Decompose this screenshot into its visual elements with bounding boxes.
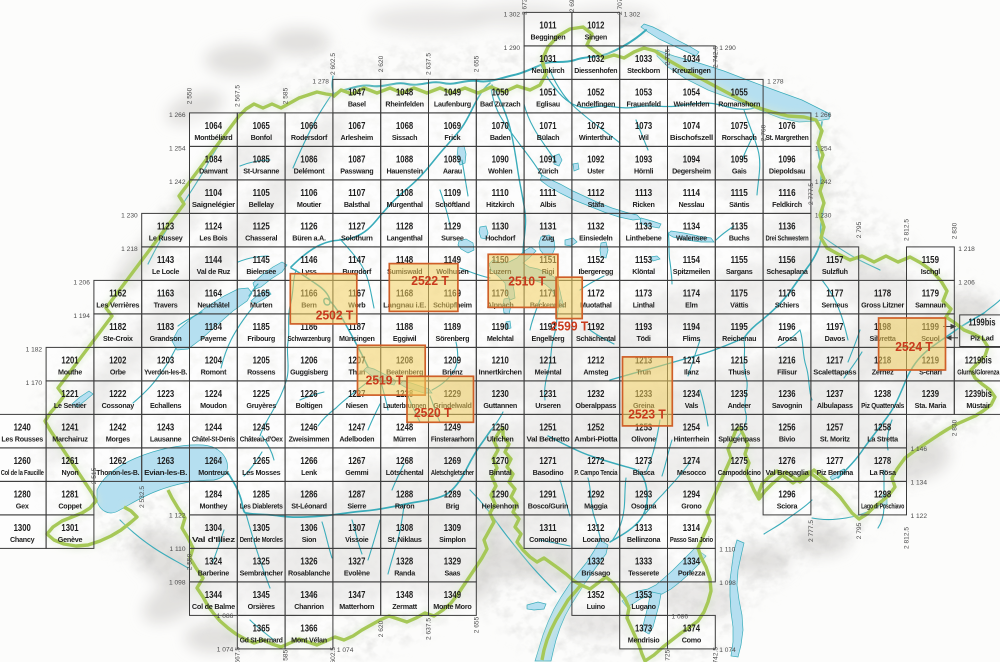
svg-text:Diessenhofen: Diessenhofen xyxy=(574,66,617,75)
svg-text:Yverdon-les-B.: Yverdon-les-B. xyxy=(144,368,187,377)
svg-text:1205: 1205 xyxy=(253,356,271,367)
svg-text:1347: 1347 xyxy=(348,590,366,601)
svg-text:1246: 1246 xyxy=(300,423,318,434)
svg-text:Luino: Luino xyxy=(587,602,606,611)
svg-text:1206: 1206 xyxy=(300,356,318,367)
svg-text:La Rösa: La Rösa xyxy=(869,468,896,477)
svg-text:Frauenfeld: Frauenfeld xyxy=(626,100,660,109)
svg-text:1215: 1215 xyxy=(731,356,749,367)
svg-text:Langenthal: Langenthal xyxy=(387,234,423,243)
svg-text:Saignelégier: Saignelégier xyxy=(192,200,235,209)
svg-text:1123: 1123 xyxy=(157,222,175,233)
svg-text:Lugano: Lugano xyxy=(631,602,656,611)
svg-text:1132: 1132 xyxy=(587,222,605,233)
svg-text:1165: 1165 xyxy=(253,289,271,300)
svg-text:2523 T: 2523 T xyxy=(628,407,666,422)
svg-text:Gross Litzner: Gross Litzner xyxy=(861,301,904,310)
svg-text:1073: 1073 xyxy=(635,121,653,132)
svg-text:1174: 1174 xyxy=(683,289,701,300)
svg-text:1089: 1089 xyxy=(444,155,462,166)
svg-text:Lago di Poschiavo: Lago di Poschiavo xyxy=(861,502,905,511)
svg-text:Beggingen: Beggingen xyxy=(531,33,566,42)
svg-text:Filisur: Filisur xyxy=(777,368,797,377)
svg-text:1 290: 1 290 xyxy=(719,45,736,52)
svg-text:Brissago: Brissago xyxy=(581,569,611,578)
svg-text:Urseren: Urseren xyxy=(535,401,560,410)
svg-text:Orbe: Orbe xyxy=(110,368,126,377)
svg-text:Mouthe: Mouthe xyxy=(58,368,82,377)
svg-text:Rorschach: Rorschach xyxy=(722,133,757,142)
svg-text:1075: 1075 xyxy=(731,121,749,132)
svg-text:1252: 1252 xyxy=(587,423,605,434)
svg-text:1 218: 1 218 xyxy=(121,246,138,253)
svg-text:1344: 1344 xyxy=(205,590,223,601)
svg-text:Grandson: Grandson xyxy=(150,334,182,343)
svg-text:Bosco/Gurin: Bosco/Gurin xyxy=(528,502,568,511)
svg-text:Sursee: Sursee xyxy=(441,234,464,243)
svg-text:1052: 1052 xyxy=(587,88,605,99)
svg-text:Helsenhorn: Helsenhorn xyxy=(482,502,519,511)
svg-text:1365: 1365 xyxy=(253,624,271,635)
svg-text:1276: 1276 xyxy=(778,456,796,467)
svg-text:P. Campo Tencia: P. Campo Tencia xyxy=(574,468,618,477)
svg-text:Ischgl: Ischgl xyxy=(921,267,941,276)
svg-text:1277: 1277 xyxy=(826,456,844,467)
svg-text:1326: 1326 xyxy=(300,557,318,568)
svg-text:1 266: 1 266 xyxy=(169,112,186,119)
svg-text:1175: 1175 xyxy=(731,289,749,300)
svg-text:Zermatt: Zermatt xyxy=(392,602,417,611)
svg-text:1164: 1164 xyxy=(205,289,223,300)
svg-text:1212: 1212 xyxy=(587,356,605,367)
svg-text:1050: 1050 xyxy=(492,88,510,99)
svg-text:Les Diablerets: Les Diablerets xyxy=(240,502,283,511)
svg-text:1333: 1333 xyxy=(635,557,653,568)
svg-text:1092: 1092 xyxy=(587,155,605,166)
svg-text:1031: 1031 xyxy=(539,54,557,65)
svg-text:1241: 1241 xyxy=(61,423,79,434)
svg-text:Hochdorf: Hochdorf xyxy=(485,234,516,243)
svg-text:1230: 1230 xyxy=(492,389,510,400)
svg-text:Brig: Brig xyxy=(446,502,459,511)
svg-text:2 515: 2 515 xyxy=(91,467,98,484)
svg-text:Binntal: Binntal xyxy=(489,468,512,477)
svg-text:2 567.5: 2 567.5 xyxy=(235,647,242,662)
svg-text:2522 T: 2522 T xyxy=(411,273,449,288)
svg-text:2 742.5: 2 742.5 xyxy=(713,46,720,68)
svg-text:Gais: Gais xyxy=(732,167,747,176)
svg-text:2 777.5: 2 777.5 xyxy=(808,183,815,205)
svg-text:Splügenpass: Splügenpass xyxy=(718,435,760,444)
svg-text:1125: 1125 xyxy=(253,222,271,233)
svg-text:Bellinzona: Bellinzona xyxy=(627,535,662,544)
svg-text:1210: 1210 xyxy=(492,356,510,367)
svg-text:Chasseral: Chasseral xyxy=(245,234,277,243)
svg-text:1053: 1053 xyxy=(635,88,653,99)
svg-text:Piz Quattervals: Piz Quattervals xyxy=(861,401,904,410)
svg-text:1199bis: 1199bis xyxy=(969,318,996,329)
svg-text:1294: 1294 xyxy=(683,490,701,501)
svg-text:1127: 1127 xyxy=(348,222,366,233)
svg-text:Wohlen: Wohlen xyxy=(488,167,512,176)
svg-text:1091: 1091 xyxy=(539,155,557,166)
svg-text:1274: 1274 xyxy=(683,456,701,467)
svg-text:1193: 1193 xyxy=(635,322,653,333)
svg-text:Muotathal: Muotathal xyxy=(580,301,612,310)
svg-text:Orsières: Orsières xyxy=(248,602,275,611)
svg-text:Como: Como xyxy=(682,636,702,645)
svg-text:1 122: 1 122 xyxy=(169,513,186,520)
svg-text:Passwang: Passwang xyxy=(340,167,373,176)
svg-text:Bellelay: Bellelay xyxy=(249,200,274,209)
svg-text:1270: 1270 xyxy=(492,456,510,467)
svg-text:1131: 1131 xyxy=(539,222,557,233)
svg-text:1288: 1288 xyxy=(396,490,414,501)
svg-text:1112: 1112 xyxy=(587,188,605,199)
svg-text:1188: 1188 xyxy=(396,322,414,333)
svg-text:1128: 1128 xyxy=(396,222,414,233)
svg-text:Meiental: Meiental xyxy=(535,368,562,377)
svg-text:1222: 1222 xyxy=(109,389,127,400)
svg-text:Piz Bernina: Piz Bernina xyxy=(817,468,855,477)
svg-text:1248: 1248 xyxy=(396,423,414,434)
svg-text:Ste-Croix: Ste-Croix xyxy=(103,334,133,343)
svg-text:Basel: Basel xyxy=(348,100,366,109)
svg-text:2 602.5: 2 602.5 xyxy=(330,647,337,662)
svg-text:Le Locle: Le Locle xyxy=(152,267,179,276)
svg-text:Ricken: Ricken xyxy=(633,200,655,209)
svg-text:Aarau: Aarau xyxy=(443,167,462,176)
svg-text:1011: 1011 xyxy=(539,21,557,32)
svg-text:Schwarzenburg: Schwarzenburg xyxy=(288,334,331,343)
svg-text:1353: 1353 xyxy=(635,590,653,601)
svg-text:1286: 1286 xyxy=(300,490,318,501)
svg-text:Balsthal: Balsthal xyxy=(344,200,370,209)
svg-text:Linthal: Linthal xyxy=(633,301,655,310)
svg-text:1265: 1265 xyxy=(253,456,271,467)
svg-text:1176: 1176 xyxy=(778,289,796,300)
svg-text:1348: 1348 xyxy=(396,590,414,601)
svg-text:Singen: Singen xyxy=(585,33,607,42)
svg-text:Schöftland: Schöftland xyxy=(435,200,470,209)
svg-text:1184: 1184 xyxy=(205,322,223,333)
svg-text:Sulzfluh: Sulzfluh xyxy=(822,267,848,276)
svg-text:1055: 1055 xyxy=(731,88,749,99)
svg-text:1088: 1088 xyxy=(396,155,414,166)
svg-text:Solothurn: Solothurn xyxy=(341,234,373,243)
svg-text:Sissach: Sissach xyxy=(392,133,417,142)
svg-text:2524 T: 2524 T xyxy=(895,339,933,354)
svg-text:Tesserete: Tesserete xyxy=(628,569,659,578)
svg-text:Klöntal: Klöntal xyxy=(632,267,655,276)
svg-text:2 637.5: 2 637.5 xyxy=(426,53,433,75)
svg-text:Scalettapass: Scalettapass xyxy=(813,368,856,377)
svg-text:Col de Balme: Col de Balme xyxy=(192,602,235,611)
svg-text:1 074: 1 074 xyxy=(719,647,736,654)
svg-text:Ibergeregg: Ibergeregg xyxy=(578,267,613,276)
svg-text:1 146: 1 146 xyxy=(911,446,928,453)
svg-text:1273: 1273 xyxy=(635,456,653,467)
svg-text:1214: 1214 xyxy=(683,356,701,367)
svg-text:1 218: 1 218 xyxy=(958,246,975,253)
svg-text:1287: 1287 xyxy=(348,490,366,501)
svg-text:1154: 1154 xyxy=(683,255,701,266)
svg-text:1086: 1086 xyxy=(300,155,318,166)
svg-text:1285: 1285 xyxy=(253,490,271,501)
svg-text:Mont Vélan: Mont Vélan xyxy=(291,636,327,645)
svg-text:Gruyères: Gruyères xyxy=(246,401,276,410)
svg-text:Wil: Wil xyxy=(639,133,649,142)
svg-text:Osogna: Osogna xyxy=(631,502,658,511)
svg-text:1280: 1280 xyxy=(14,490,32,501)
svg-text:1145: 1145 xyxy=(253,255,271,266)
svg-text:1236: 1236 xyxy=(778,389,796,400)
svg-text:2 602.5: 2 602.5 xyxy=(330,53,337,75)
svg-text:Sciora: Sciora xyxy=(777,502,799,511)
svg-text:Payerne: Payerne xyxy=(200,334,226,343)
svg-text:2 690: 2 690 xyxy=(569,0,576,12)
svg-text:1072: 1072 xyxy=(587,121,605,132)
svg-text:Niesen: Niesen xyxy=(346,401,368,410)
svg-text:1211: 1211 xyxy=(539,356,557,367)
svg-text:1147: 1147 xyxy=(348,255,366,266)
svg-text:Moudon: Moudon xyxy=(200,401,226,410)
svg-text:1 194: 1 194 xyxy=(73,313,90,320)
svg-text:Diepoldsau: Diepoldsau xyxy=(769,167,805,176)
svg-text:Basodino: Basodino xyxy=(533,468,565,477)
svg-text:1109: 1109 xyxy=(444,188,462,199)
svg-text:Schesaplana: Schesaplana xyxy=(766,267,808,276)
svg-text:1130: 1130 xyxy=(492,222,510,233)
svg-text:1182: 1182 xyxy=(109,322,127,333)
svg-text:1304: 1304 xyxy=(205,523,223,534)
svg-text:1281: 1281 xyxy=(61,490,79,501)
svg-text:1219bis: 1219bis xyxy=(965,356,992,367)
svg-text:Raron: Raron xyxy=(395,502,415,511)
svg-text:Damvant: Damvant xyxy=(199,167,228,176)
svg-text:1226: 1226 xyxy=(300,389,318,400)
svg-text:1 098: 1 098 xyxy=(719,580,736,587)
svg-text:1324: 1324 xyxy=(205,557,223,568)
svg-text:1223: 1223 xyxy=(157,389,175,400)
svg-text:1159: 1159 xyxy=(922,255,940,266)
svg-text:Guttannen: Guttannen xyxy=(483,401,517,410)
svg-text:2 620: 2 620 xyxy=(378,620,385,637)
svg-text:Col de la Faucille: Col de la Faucille xyxy=(1,468,44,477)
svg-text:1 170: 1 170 xyxy=(26,380,43,387)
svg-text:St. Margrethen: St. Margrethen xyxy=(766,133,809,142)
svg-text:Sembrancher: Sembrancher xyxy=(240,569,284,578)
svg-text:Savognin: Savognin xyxy=(772,401,802,410)
svg-text:1366: 1366 xyxy=(300,624,318,635)
svg-text:1311: 1311 xyxy=(539,523,557,534)
svg-text:Bülach: Bülach xyxy=(537,133,559,142)
svg-text:Elm: Elm xyxy=(685,301,697,310)
svg-text:1185: 1185 xyxy=(253,322,271,333)
svg-text:1238: 1238 xyxy=(874,389,892,400)
svg-text:1115: 1115 xyxy=(731,188,749,199)
svg-text:1269: 1269 xyxy=(444,456,462,467)
svg-text:1314: 1314 xyxy=(683,523,701,534)
svg-text:Laufenburg: Laufenburg xyxy=(434,100,471,109)
svg-text:Adelboden: Adelboden xyxy=(339,435,374,444)
svg-text:Münsingen: Münsingen xyxy=(339,334,375,343)
svg-text:1301: 1301 xyxy=(61,523,79,534)
svg-text:Steckborn: Steckborn xyxy=(627,66,660,75)
svg-text:Châtel-St-Denis: Châtel-St-Denis xyxy=(192,435,235,444)
svg-text:1133: 1133 xyxy=(635,222,653,233)
svg-text:Maggia: Maggia xyxy=(584,502,609,511)
svg-text:1178: 1178 xyxy=(874,289,892,300)
svg-text:2519 T: 2519 T xyxy=(366,373,404,388)
svg-text:1272: 1272 xyxy=(587,456,605,467)
svg-text:2502 T: 2502 T xyxy=(316,308,354,323)
svg-text:Büren a.A.: Büren a.A. xyxy=(292,234,326,243)
svg-text:1135: 1135 xyxy=(731,222,749,233)
svg-text:1196: 1196 xyxy=(778,322,796,333)
svg-text:2 550: 2 550 xyxy=(187,553,194,570)
svg-text:1260: 1260 xyxy=(14,456,32,467)
svg-text:1069: 1069 xyxy=(444,121,462,132)
svg-text:2 655: 2 655 xyxy=(474,616,481,633)
svg-text:Campodolcino: Campodolcino xyxy=(718,468,762,477)
svg-text:Feldkirch: Feldkirch xyxy=(772,200,802,209)
svg-text:1232: 1232 xyxy=(587,389,605,400)
svg-text:1087: 1087 xyxy=(348,155,366,166)
svg-text:Lötschental: Lötschental xyxy=(386,468,424,477)
svg-text:1352: 1352 xyxy=(587,590,605,601)
svg-text:Walensee: Walensee xyxy=(676,234,707,243)
svg-text:Barberine: Barberine xyxy=(198,569,230,578)
svg-text:Samnaun: Samnaun xyxy=(915,301,946,310)
svg-text:1251: 1251 xyxy=(539,423,557,434)
svg-text:Genève: Genève xyxy=(58,535,83,544)
svg-text:1064: 1064 xyxy=(205,121,223,132)
svg-text:1217: 1217 xyxy=(826,356,844,367)
svg-text:Val de Ruz: Val de Ruz xyxy=(197,267,231,276)
svg-text:1203: 1203 xyxy=(157,356,175,367)
svg-text:1309: 1309 xyxy=(444,523,462,534)
svg-text:Val d'Illiez: Val d'Illiez xyxy=(192,535,236,544)
svg-text:Sierre: Sierre xyxy=(347,502,366,511)
svg-text:Weinfelden: Weinfelden xyxy=(674,100,710,109)
svg-text:Hörnli: Hörnli xyxy=(634,167,654,176)
svg-text:2 777.5: 2 777.5 xyxy=(808,520,815,542)
svg-text:1107: 1107 xyxy=(348,188,366,199)
svg-text:Rosablanche: Rosablanche xyxy=(288,569,330,578)
svg-text:1173: 1173 xyxy=(635,289,653,300)
svg-text:Albis: Albis xyxy=(540,200,557,209)
svg-text:2 725: 2 725 xyxy=(665,649,672,662)
svg-text:Vals: Vals xyxy=(685,401,699,410)
svg-text:Matterhorn: Matterhorn xyxy=(339,602,374,611)
svg-text:1271: 1271 xyxy=(539,456,557,467)
svg-text:1163: 1163 xyxy=(157,289,175,300)
svg-text:Aletschgletscher: Aletschgletscher xyxy=(431,468,474,477)
svg-text:1113: 1113 xyxy=(635,188,653,199)
svg-text:Grono: Grono xyxy=(681,502,702,511)
svg-text:1177: 1177 xyxy=(826,289,844,300)
svg-text:2 585: 2 585 xyxy=(282,87,289,104)
svg-text:1134: 1134 xyxy=(683,222,701,233)
svg-text:Rodersdorf: Rodersdorf xyxy=(291,133,328,142)
svg-text:Bivio: Bivio xyxy=(779,435,796,444)
svg-text:Locarno: Locarno xyxy=(582,535,609,544)
svg-text:1373: 1373 xyxy=(635,624,653,635)
svg-text:Les Rousses: Les Rousses xyxy=(1,435,43,444)
svg-text:1179: 1179 xyxy=(922,289,940,300)
svg-text:1345: 1345 xyxy=(253,590,271,601)
svg-text:1261: 1261 xyxy=(61,456,79,467)
svg-text:2 620: 2 620 xyxy=(378,55,385,72)
svg-text:1108: 1108 xyxy=(396,188,414,199)
svg-text:1192: 1192 xyxy=(587,322,605,333)
svg-text:Porlezza: Porlezza xyxy=(678,569,706,578)
svg-text:Arosa: Arosa xyxy=(777,334,797,343)
svg-text:Guggisberg: Guggisberg xyxy=(290,368,328,377)
svg-text:1129: 1129 xyxy=(444,222,462,233)
svg-text:1225: 1225 xyxy=(253,389,271,400)
svg-text:1240: 1240 xyxy=(14,423,32,434)
svg-text:Tödi: Tödi xyxy=(637,334,651,343)
svg-text:2 742.5: 2 742.5 xyxy=(713,647,720,662)
svg-text:1 266: 1 266 xyxy=(815,112,832,119)
svg-text:Mesocco: Mesocco xyxy=(677,468,707,477)
svg-text:1328: 1328 xyxy=(396,557,414,568)
svg-text:Passo San Jorio: Passo San Jorio xyxy=(670,535,714,544)
svg-text:Simplon: Simplon xyxy=(439,535,466,544)
svg-text:Andeer: Andeer xyxy=(728,401,752,410)
svg-text:1239: 1239 xyxy=(922,389,940,400)
svg-text:1152: 1152 xyxy=(587,255,605,266)
svg-text:1136: 1136 xyxy=(778,222,796,233)
svg-text:2 672.5: 2 672.5 xyxy=(521,0,528,15)
svg-text:Coppet: Coppet xyxy=(58,502,82,511)
svg-text:1048: 1048 xyxy=(396,88,414,99)
svg-text:1300: 1300 xyxy=(14,523,32,534)
svg-text:1 182: 1 182 xyxy=(26,347,43,354)
svg-text:2 707.5: 2 707.5 xyxy=(617,0,624,15)
svg-text:Ambri-Piotta: Ambri-Piotta xyxy=(574,435,618,444)
svg-text:1071: 1071 xyxy=(539,121,557,132)
svg-text:Morges: Morges xyxy=(106,435,130,444)
svg-text:Vättis: Vättis xyxy=(730,301,748,310)
svg-text:1 110: 1 110 xyxy=(719,546,735,553)
svg-text:Evian-les-B.: Evian-les-B. xyxy=(144,468,187,477)
svg-text:1034: 1034 xyxy=(683,54,701,65)
svg-text:2 795: 2 795 xyxy=(856,522,863,539)
svg-text:1244: 1244 xyxy=(205,423,223,434)
svg-text:Val Bregaglia: Val Bregaglia xyxy=(766,468,810,477)
svg-text:1 206: 1 206 xyxy=(73,280,90,287)
svg-text:Les Verrières: Les Verrières xyxy=(96,301,139,310)
svg-text:1 074: 1 074 xyxy=(217,647,234,654)
svg-text:1221: 1221 xyxy=(61,389,79,400)
svg-text:1278: 1278 xyxy=(874,456,892,467)
svg-text:Thusis: Thusis xyxy=(728,368,750,377)
svg-text:Sargans: Sargans xyxy=(726,267,753,276)
svg-text:1268: 1268 xyxy=(396,456,414,467)
svg-text:1266: 1266 xyxy=(300,456,318,467)
svg-text:Winterthur: Winterthur xyxy=(579,133,613,142)
svg-text:1231: 1231 xyxy=(539,389,557,400)
svg-text:2599 T: 2599 T xyxy=(551,318,589,333)
svg-text:1 242: 1 242 xyxy=(815,179,832,186)
svg-text:Zürich: Zürich xyxy=(538,167,558,176)
svg-text:2 760: 2 760 xyxy=(760,124,767,141)
svg-text:1202: 1202 xyxy=(109,356,127,367)
svg-text:1 254: 1 254 xyxy=(815,146,832,153)
